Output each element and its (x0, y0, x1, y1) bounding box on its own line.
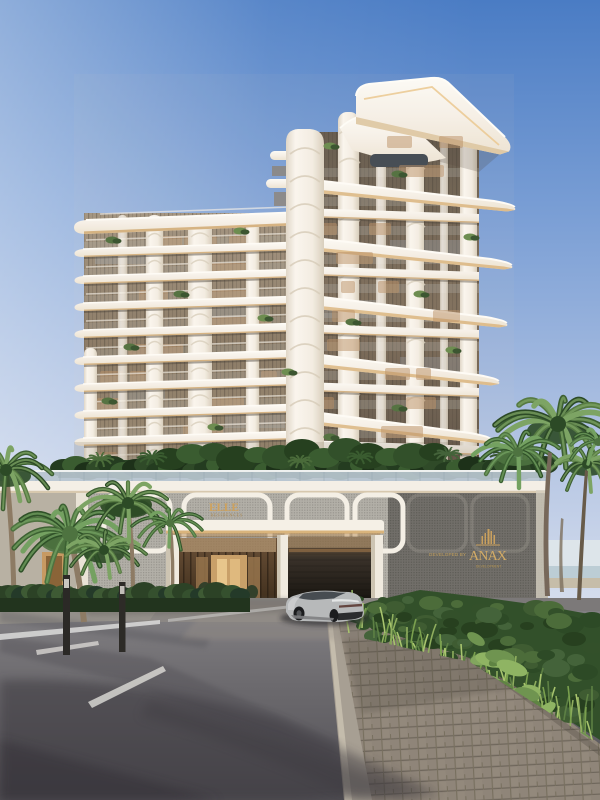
svg-text:RESIDENCES: RESIDENCES (211, 513, 244, 518)
svg-text:ANAX: ANAX (469, 549, 509, 564)
svg-text:DEVELOPMENT: DEVELOPMENT (476, 565, 502, 569)
svg-text:DEVELOPED BY: DEVELOPED BY (429, 552, 467, 557)
